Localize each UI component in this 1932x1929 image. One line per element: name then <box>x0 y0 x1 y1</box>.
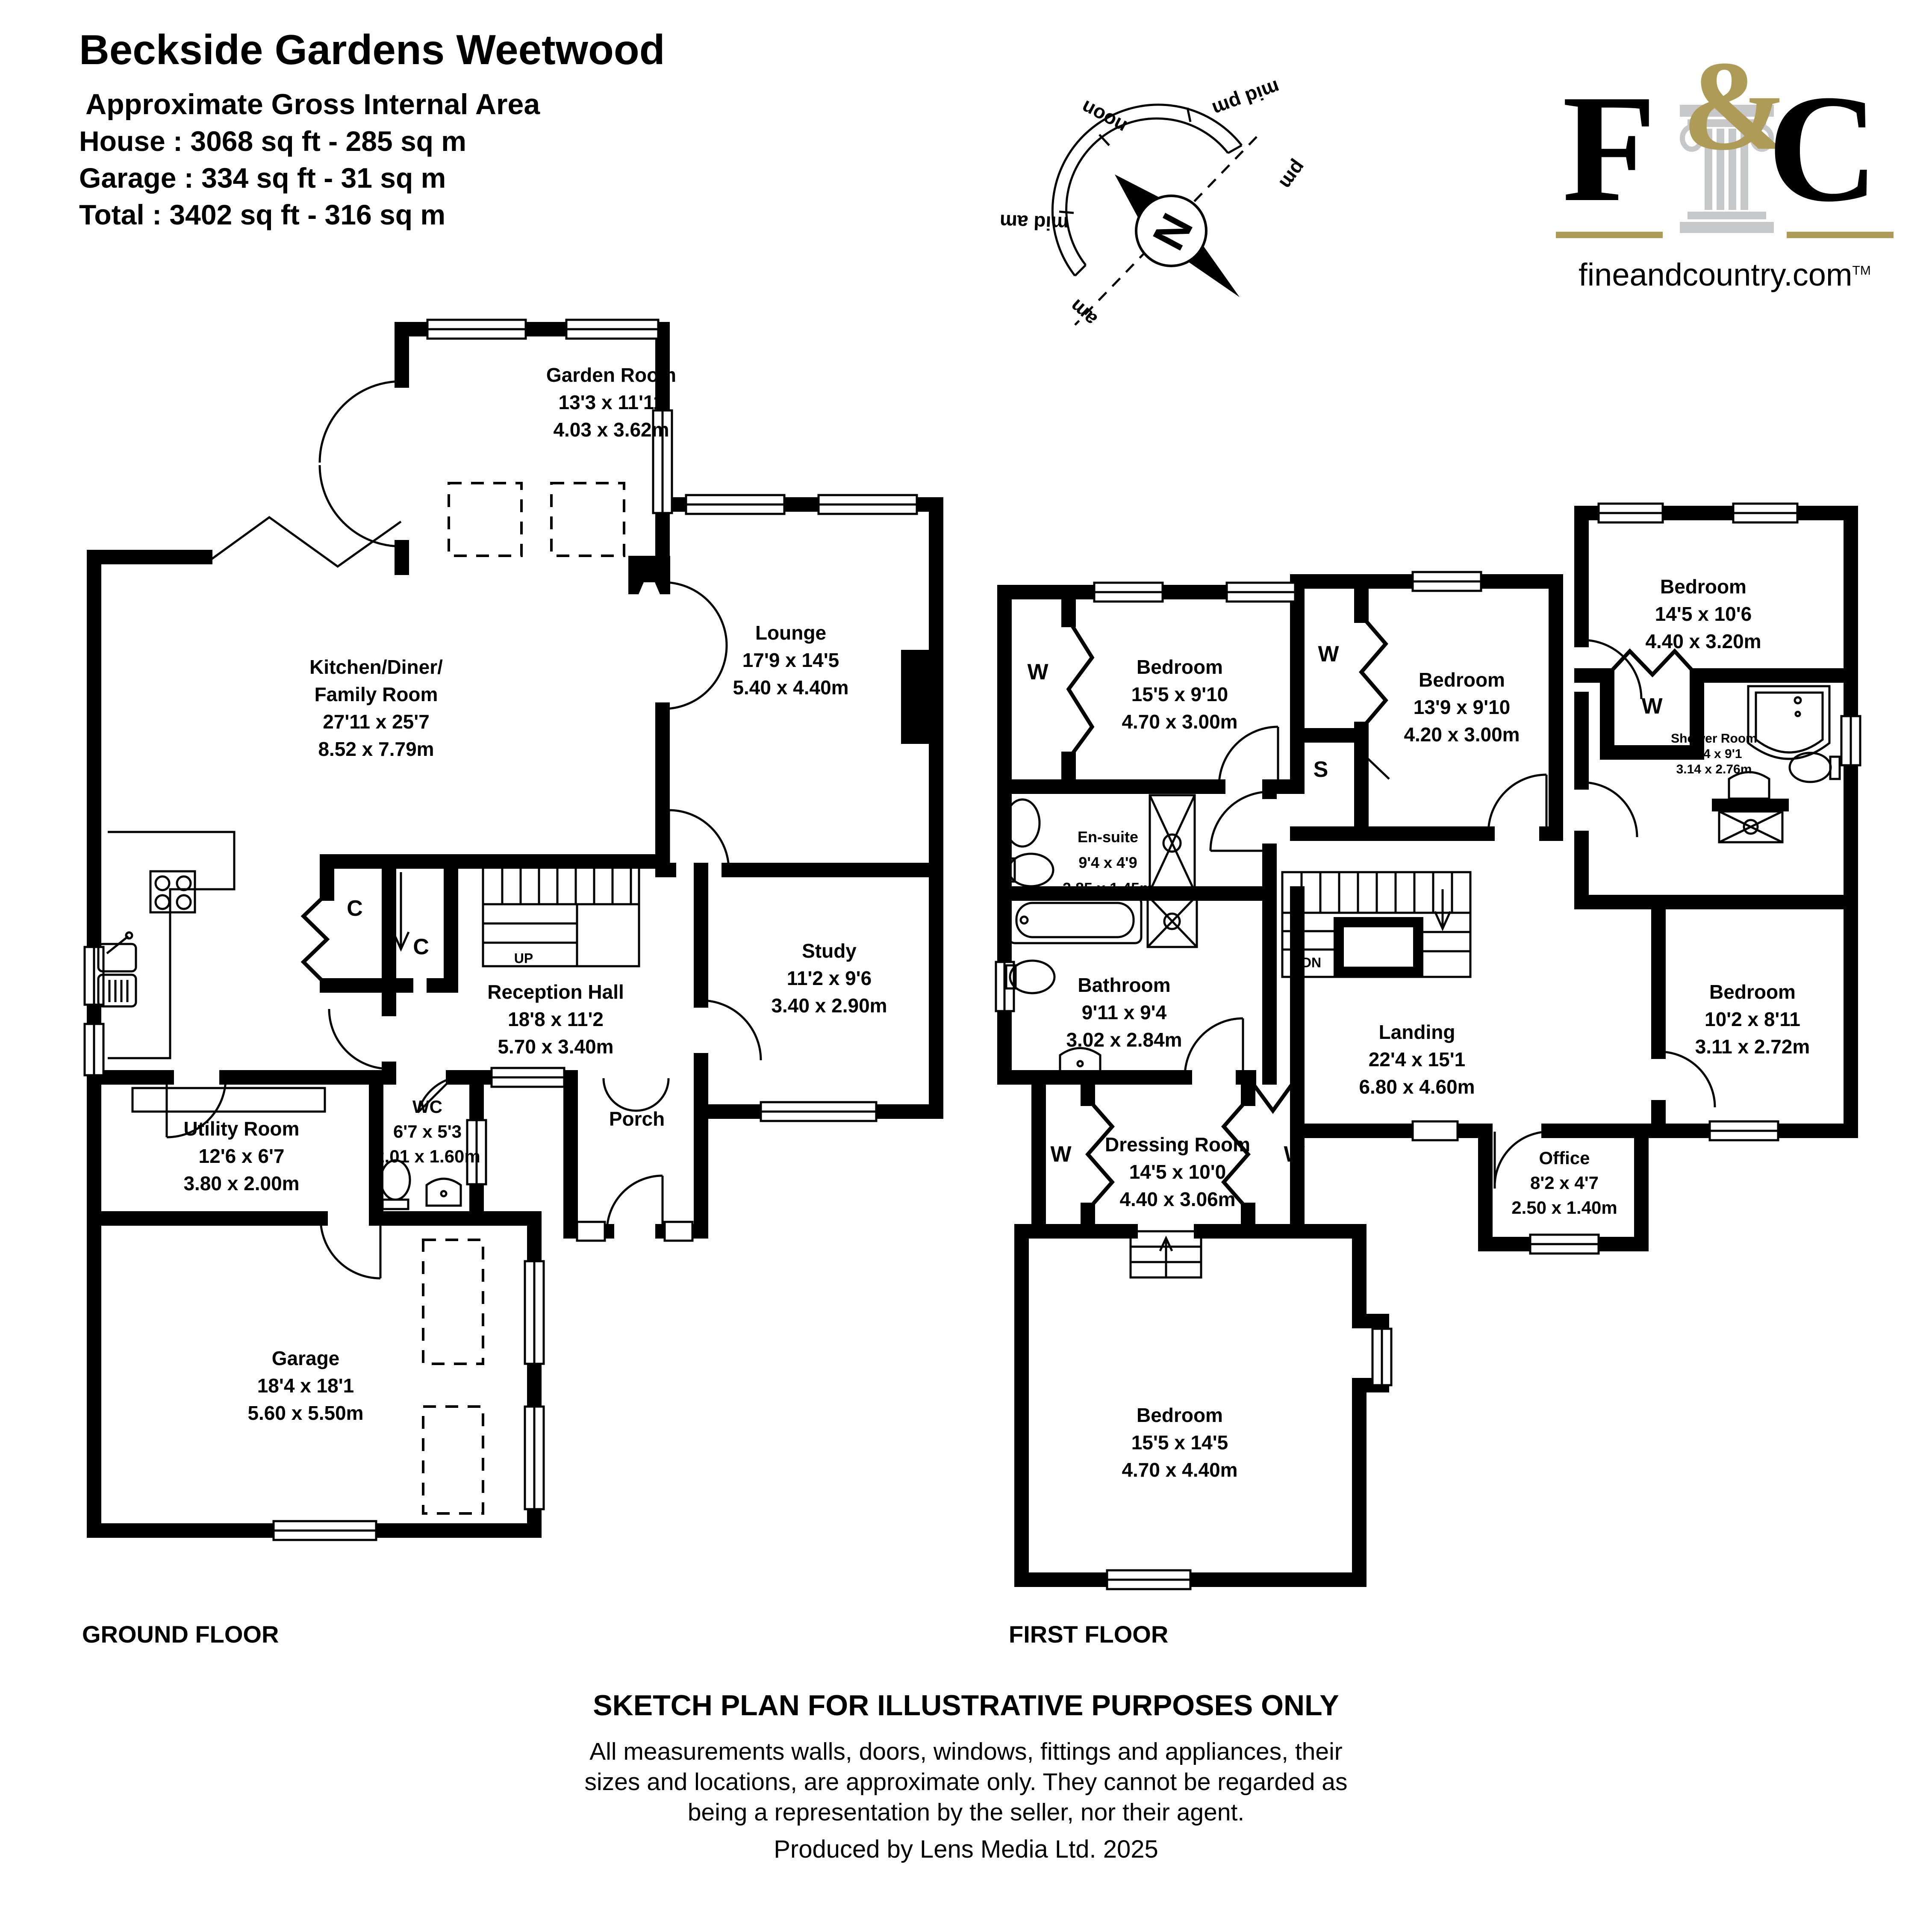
closet-c1: C <box>347 896 363 921</box>
room-label-bedroom5: Bedroom15'5 x 14'54.70 x 4.40m <box>1122 1401 1237 1484</box>
room-label-reception: Reception Hall18'8 x 11'25.70 x 3.40m <box>487 978 624 1060</box>
room-label-bedroom2: Bedroom13'9 x 9'104.20 x 3.00m <box>1404 666 1520 748</box>
compass-mid-am: mid am <box>999 210 1069 235</box>
room-label-ensuite: En-suite9'4 x 4'92.85 x 1.45m <box>1063 824 1153 901</box>
logo-website: fineandcountry.comTM <box>1579 257 1871 293</box>
first-floor-label: FIRST FLOOR <box>1009 1620 1168 1648</box>
room-label-shower: Shower Room10'4 x 9'13.14 x 2.76m <box>1671 731 1757 777</box>
garage-bay <box>423 1407 483 1513</box>
closet-c2: C <box>413 934 429 960</box>
rooflight <box>551 483 624 556</box>
kitchen-fixtures <box>98 832 234 1058</box>
room-label-garden: Garden Room13'3 x 11'114.03 x 3.62m <box>546 361 676 443</box>
room-label-wc: WC6'7 x 5'32.01 x 1.60m <box>374 1094 480 1169</box>
logo-rule-left <box>1556 232 1663 238</box>
toilet-icon <box>1790 753 1831 782</box>
corner-bath-icon <box>1748 686 1829 759</box>
store-s: S <box>1314 757 1328 782</box>
wardrobe-w3: W <box>1050 1141 1071 1167</box>
compass-pm: pm <box>1275 156 1311 193</box>
garage-bay <box>423 1240 483 1364</box>
wardrobe-w1: W <box>1027 659 1048 685</box>
page-title: Beckside Gardens Weetwood <box>79 26 665 74</box>
fireplace <box>901 650 936 744</box>
wardrobe-w5: W <box>1641 693 1662 719</box>
room-label-porch: Porch <box>609 1105 665 1133</box>
floorplan-page: Beckside Gardens Weetwood Approximate Gr… <box>0 0 1932 1929</box>
area-subtitle: Approximate Gross Internal Area <box>85 88 540 121</box>
room-label-bedroom4: Bedroom10'2 x 8'113.11 x 2.72m <box>1695 978 1810 1060</box>
logo-letter-c: C <box>1767 60 1879 237</box>
rooflight <box>449 483 521 556</box>
compass-am: am <box>1065 295 1101 330</box>
agency-logo: F & C fineandcountry.comTM <box>1556 64 1894 286</box>
room-label-utility: Utility Room12'6 x 6'73.80 x 2.00m <box>183 1115 299 1197</box>
compass-rose: N noon mid pm pm mid am am <box>1000 60 1316 376</box>
stairs-up-label: UP <box>514 951 533 967</box>
disclaimer-text: All measurements walls, doors, windows, … <box>585 1737 1348 1828</box>
produced-by: Produced by Lens Media Ltd. 2025 <box>774 1835 1158 1864</box>
room-label-study: Study11'2 x 9'63.40 x 2.90m <box>771 937 887 1019</box>
room-label-bedroom1: Bedroom15'5 x 9'104.70 x 3.00m <box>1122 653 1237 735</box>
total-area: Total : 3402 sq ft - 316 sq m <box>79 198 445 231</box>
room-label-bathroom: Bathroom9'11 x 9'43.02 x 2.84m <box>1066 971 1182 1053</box>
room-label-lounge: Lounge17'9 x 14'55.40 x 4.40m <box>733 619 848 701</box>
compass-mid-pm: mid pm <box>1210 76 1283 121</box>
room-label-bedroom3: Bedroom14'5 x 10'64.40 x 3.20m <box>1645 573 1761 655</box>
garage-area: Garage : 334 sq ft - 31 sq m <box>79 162 446 194</box>
compass-noon: noon <box>1078 96 1131 139</box>
ground-floor-label: GROUND FLOOR <box>82 1620 279 1648</box>
logo-letter-f: F <box>1562 60 1656 237</box>
room-label-office: Office8'2 x 4'72.50 x 1.40m <box>1511 1146 1617 1220</box>
room-label-landing: Landing22'4 x 15'16.80 x 4.60m <box>1359 1018 1475 1100</box>
logo-rule-right <box>1787 232 1894 238</box>
room-label-kitchen: Kitchen/Diner/Family Room27'11 x 25'78.5… <box>309 653 443 763</box>
room-label-dressing: Dressing Room14'5 x 10'04.40 x 3.06m <box>1105 1131 1250 1213</box>
house-area: House : 3068 sq ft - 285 sq m <box>79 125 466 157</box>
sketch-disclaimer-title: SKETCH PLAN FOR ILLUSTRATIVE PURPOSES ON… <box>593 1689 1339 1722</box>
room-label-garage: Garage18'4 x 18'15.60 x 5.50m <box>247 1345 363 1427</box>
wardrobe-w2: W <box>1318 641 1339 667</box>
toilet-icon <box>1010 961 1054 993</box>
stairs-dn-label: DN <box>1302 955 1321 971</box>
ground-walls <box>94 329 936 1531</box>
utility-fixtures <box>133 1088 325 1112</box>
wardrobe-w4: W <box>1284 1141 1305 1167</box>
